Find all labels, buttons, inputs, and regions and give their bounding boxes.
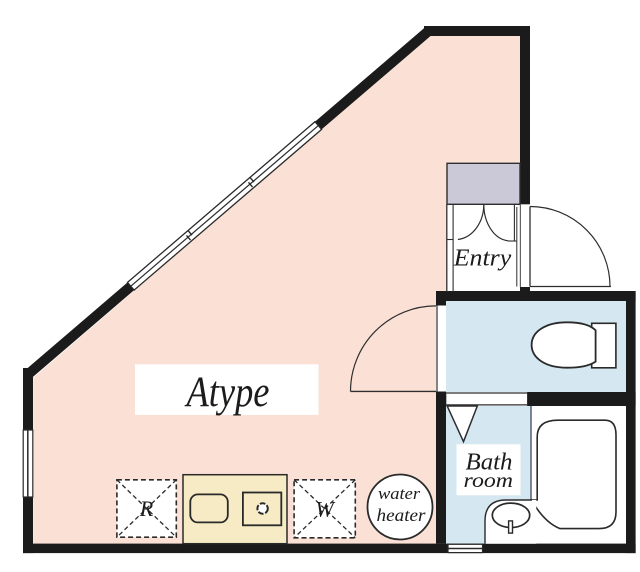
svg-text:W: W	[315, 497, 335, 522]
svg-text:Atype: Atype	[184, 369, 270, 416]
svg-text:room: room	[464, 468, 514, 492]
svg-text:R: R	[139, 496, 154, 521]
svg-text:water: water	[378, 484, 420, 503]
svg-text:Entry: Entry	[453, 245, 512, 271]
svg-text:heater: heater	[377, 505, 427, 525]
